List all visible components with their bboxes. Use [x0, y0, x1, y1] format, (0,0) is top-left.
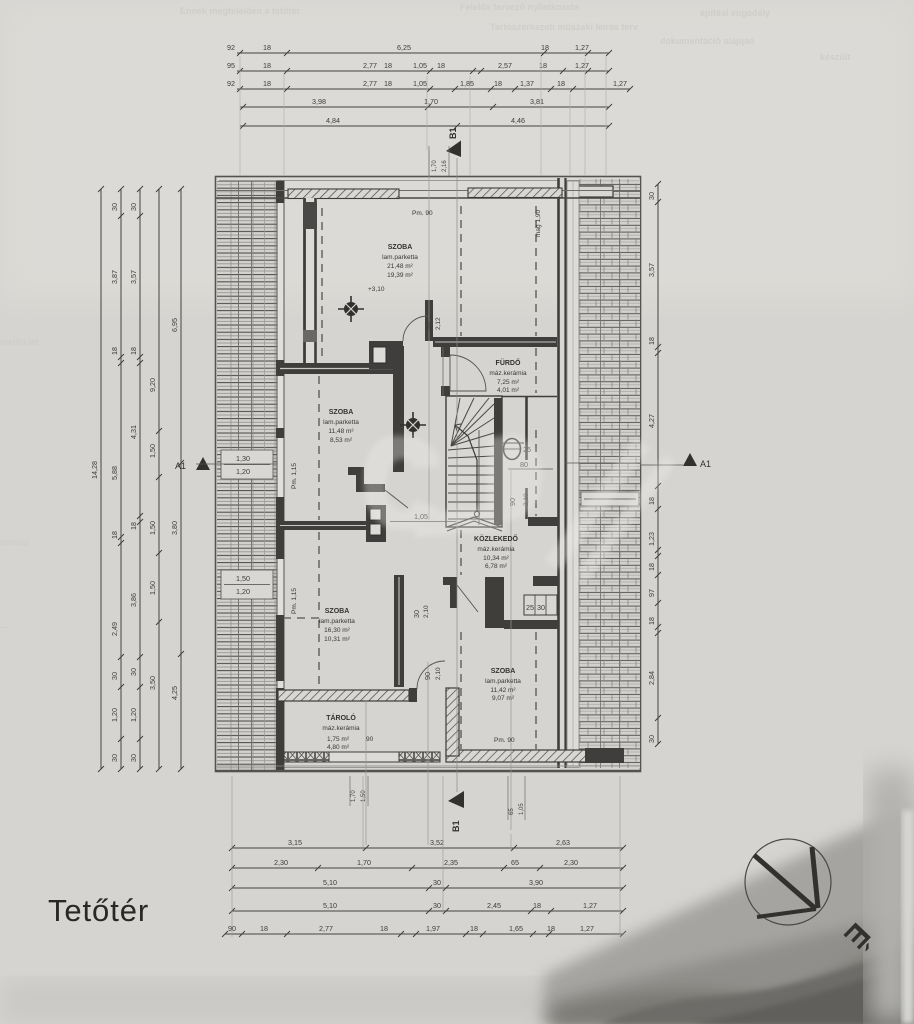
svg-text:3,98: 3,98: [312, 97, 326, 106]
svg-text:30: 30: [110, 672, 119, 680]
svg-text:9,20: 9,20: [148, 378, 157, 392]
svg-text:4,46: 4,46: [511, 116, 525, 125]
svg-text:18: 18: [263, 43, 271, 52]
svg-text:1,05: 1,05: [413, 61, 427, 70]
svg-text:18: 18: [647, 337, 656, 345]
svg-text:30: 30: [129, 203, 138, 211]
svg-text:2,77: 2,77: [363, 79, 377, 88]
svg-text:1,97: 1,97: [426, 924, 440, 933]
svg-text:dokumentáció alapján: dokumentáció alapján: [660, 36, 755, 46]
svg-text:4,84: 4,84: [326, 116, 340, 125]
svg-text:3,57: 3,57: [129, 270, 138, 284]
svg-text:tervlap: tervlap: [0, 537, 30, 547]
svg-text:SZOBA: SZOBA: [388, 244, 413, 251]
svg-text:lam.parketta: lam.parketta: [485, 678, 521, 685]
svg-text:3,86: 3,86: [129, 593, 138, 607]
svg-text:18: 18: [557, 79, 565, 88]
svg-text:2,12: 2,12: [435, 317, 442, 330]
svg-text:Pm. 1,15: Pm. 1,15: [291, 588, 298, 614]
svg-text:18: 18: [437, 61, 445, 70]
svg-text:2,45: 2,45: [487, 901, 501, 910]
svg-text:SZOBA: SZOBA: [329, 409, 354, 416]
svg-text:1,27: 1,27: [575, 61, 589, 70]
svg-text:FÜRDŐ: FÜRDŐ: [496, 358, 521, 367]
svg-text:Tartószerkezeti műszaki leírás: Tartószerkezeti műszaki leírás terv: [490, 22, 638, 32]
svg-text:1,30: 1,30: [236, 454, 250, 463]
svg-text:16,30 m²: 16,30 m²: [324, 627, 350, 634]
svg-text:2,30: 2,30: [564, 858, 578, 867]
svg-text:1,20: 1,20: [236, 587, 250, 596]
svg-text:1,05: 1,05: [413, 79, 427, 88]
svg-text:30: 30: [647, 192, 656, 200]
svg-text:2,10: 2,10: [435, 667, 442, 680]
svg-text:21,48 m²: 21,48 m²: [387, 263, 413, 270]
svg-text:1,65: 1,65: [509, 924, 523, 933]
svg-text:14,28: 14,28: [90, 461, 99, 479]
svg-text:B1: B1: [448, 127, 458, 139]
svg-text:Tetőtér: Tetőtér: [48, 893, 149, 928]
svg-text:1,20: 1,20: [110, 708, 119, 722]
svg-text:2,57: 2,57: [498, 61, 512, 70]
svg-text:18: 18: [470, 924, 478, 933]
svg-text:1,50: 1,50: [148, 444, 157, 458]
svg-text:2,49: 2,49: [110, 622, 119, 636]
svg-text:építési engedély: építési engedély: [700, 8, 770, 18]
svg-text:1,70: 1,70: [432, 160, 438, 172]
svg-text:Felelős tervező nyilatkozata: Felelős tervező nyilatkozata: [460, 2, 580, 12]
svg-text:SZOBA: SZOBA: [491, 668, 516, 675]
svg-text:2,84: 2,84: [647, 671, 656, 685]
svg-text:Pm. 1,15: Pm. 1,15: [291, 463, 298, 489]
svg-text:2,77: 2,77: [363, 61, 377, 70]
svg-text:92: 92: [227, 43, 235, 52]
svg-text:2,10: 2,10: [423, 605, 430, 618]
svg-text:4,80 m²: 4,80 m²: [327, 744, 350, 751]
svg-text:1,27: 1,27: [583, 901, 597, 910]
svg-text:1,85: 1,85: [460, 79, 474, 88]
svg-text:65: 65: [509, 808, 515, 815]
svg-text:18: 18: [541, 43, 549, 52]
svg-text:30: 30: [433, 878, 441, 887]
svg-text:1,50: 1,50: [236, 574, 250, 583]
svg-text:Ennek megfelelően a tetőtér: Ennek megfelelően a tetőtér: [180, 6, 301, 16]
svg-text:1,70: 1,70: [351, 790, 357, 802]
svg-text:A1: A1: [700, 459, 711, 469]
svg-text:9,07 m²: 9,07 m²: [492, 695, 515, 702]
svg-text:18: 18: [647, 563, 656, 571]
svg-text:6,25: 6,25: [397, 43, 411, 52]
svg-text:30: 30: [129, 668, 138, 676]
svg-text:18: 18: [533, 901, 541, 910]
svg-text:25: 25: [526, 603, 534, 612]
svg-text:18: 18: [110, 531, 119, 539]
svg-text:90: 90: [366, 736, 374, 743]
svg-text:10,34 m²: 10,34 m²: [483, 555, 509, 562]
svg-text:TÁROLÓ: TÁROLÓ: [326, 713, 356, 722]
svg-text:2,30: 2,30: [274, 858, 288, 867]
svg-text:18: 18: [380, 924, 388, 933]
svg-text:3,80: 3,80: [170, 521, 179, 535]
svg-text:készült: készült: [820, 52, 851, 62]
svg-text:SZOBA: SZOBA: [325, 608, 350, 615]
svg-text:4,01 m²: 4,01 m²: [497, 387, 520, 394]
svg-text:10,31 m²: 10,31 m²: [324, 636, 350, 643]
svg-text:A1: A1: [175, 461, 186, 471]
svg-text:1,20: 1,20: [129, 708, 138, 722]
svg-text:30: 30: [647, 735, 656, 743]
svg-text:5,88: 5,88: [110, 466, 119, 480]
svg-text:lam.parketta: lam.parketta: [323, 419, 359, 426]
svg-text:1,27: 1,27: [613, 79, 627, 88]
svg-text:1,50: 1,50: [148, 521, 157, 535]
svg-text:3,50: 3,50: [148, 676, 157, 690]
svg-text:3,57: 3,57: [647, 263, 656, 277]
svg-text:1,50: 1,50: [148, 581, 157, 595]
svg-text:3,81: 3,81: [530, 97, 544, 106]
svg-text:3,15: 3,15: [288, 838, 302, 847]
svg-text:6,95: 6,95: [170, 318, 179, 332]
svg-text:1,75 m²: 1,75 m²: [327, 736, 350, 743]
svg-text:1,23: 1,23: [647, 532, 656, 546]
svg-text:lam.parketta: lam.parketta: [319, 618, 355, 625]
svg-text:30: 30: [129, 754, 138, 762]
svg-text:2,35: 2,35: [444, 858, 458, 867]
svg-text:—: —: [0, 622, 9, 632]
svg-text:melléklet: melléklet: [0, 337, 39, 347]
svg-text:1,70: 1,70: [424, 97, 438, 106]
svg-text:92: 92: [227, 79, 235, 88]
svg-text:4,31: 4,31: [129, 425, 138, 439]
svg-text:18: 18: [494, 79, 502, 88]
svg-text:máz.kerámia: máz.kerámia: [322, 725, 360, 732]
svg-text:18: 18: [110, 347, 119, 355]
svg-text:19,39 m²: 19,39 m²: [387, 272, 413, 279]
svg-text:30: 30: [433, 901, 441, 910]
svg-text:8,53 m²: 8,53 m²: [330, 437, 353, 444]
svg-text:18: 18: [129, 522, 138, 530]
svg-text:5,10: 5,10: [323, 901, 337, 910]
svg-text:97: 97: [647, 589, 656, 597]
svg-text:30: 30: [110, 203, 119, 211]
svg-text:1,05: 1,05: [519, 803, 525, 815]
svg-text:1,27: 1,27: [575, 43, 589, 52]
svg-text:90: 90: [423, 322, 432, 330]
svg-text:5,10: 5,10: [323, 878, 337, 887]
svg-text:2,77: 2,77: [319, 924, 333, 933]
svg-text:18: 18: [129, 347, 138, 355]
svg-text:18: 18: [539, 61, 547, 70]
svg-text:Pm. 90: Pm. 90: [494, 737, 515, 744]
svg-text:4,25: 4,25: [170, 686, 179, 700]
svg-text:2,63: 2,63: [556, 838, 570, 847]
svg-text:1,27: 1,27: [580, 924, 594, 933]
svg-text:18: 18: [384, 61, 392, 70]
svg-text:30: 30: [537, 603, 545, 612]
svg-text:11,42 m²: 11,42 m²: [490, 687, 516, 694]
svg-text:lam.parketta: lam.parketta: [382, 254, 418, 261]
svg-text:30: 30: [412, 610, 421, 618]
svg-text:3,52: 3,52: [430, 838, 444, 847]
svg-text:mag 1,90: mag 1,90: [535, 210, 542, 237]
svg-text:18: 18: [384, 79, 392, 88]
svg-text:7,25 m²: 7,25 m²: [497, 379, 520, 386]
svg-text:11,48 m²: 11,48 m²: [328, 428, 354, 435]
svg-text:18: 18: [260, 924, 268, 933]
svg-text:1,37: 1,37: [520, 79, 534, 88]
svg-text:máz.kerámia: máz.kerámia: [489, 370, 527, 377]
svg-text:Pm. 90: Pm. 90: [412, 210, 433, 217]
svg-text:máz.kerámia: máz.kerámia: [477, 546, 515, 553]
svg-text:B1: B1: [451, 820, 461, 832]
svg-text:1,70: 1,70: [357, 858, 371, 867]
svg-text:6,78 m²: 6,78 m²: [485, 563, 508, 570]
svg-text:2,16: 2,16: [442, 160, 448, 172]
svg-text:30: 30: [110, 754, 119, 762]
svg-text:65: 65: [511, 858, 519, 867]
svg-text:+3,10: +3,10: [368, 286, 385, 293]
svg-text:3,87: 3,87: [110, 270, 119, 284]
svg-text:4,27: 4,27: [647, 414, 656, 428]
svg-text:3,90: 3,90: [529, 878, 543, 887]
svg-text:1,50: 1,50: [361, 790, 367, 802]
svg-text:18: 18: [263, 79, 271, 88]
svg-text:KÖZLEKEDŐ: KÖZLEKEDŐ: [474, 534, 519, 543]
svg-text:18: 18: [647, 617, 656, 625]
svg-text:95: 95: [227, 61, 235, 70]
svg-text:1,20: 1,20: [236, 467, 250, 476]
svg-text:18: 18: [263, 61, 271, 70]
svg-text:90: 90: [423, 672, 432, 680]
